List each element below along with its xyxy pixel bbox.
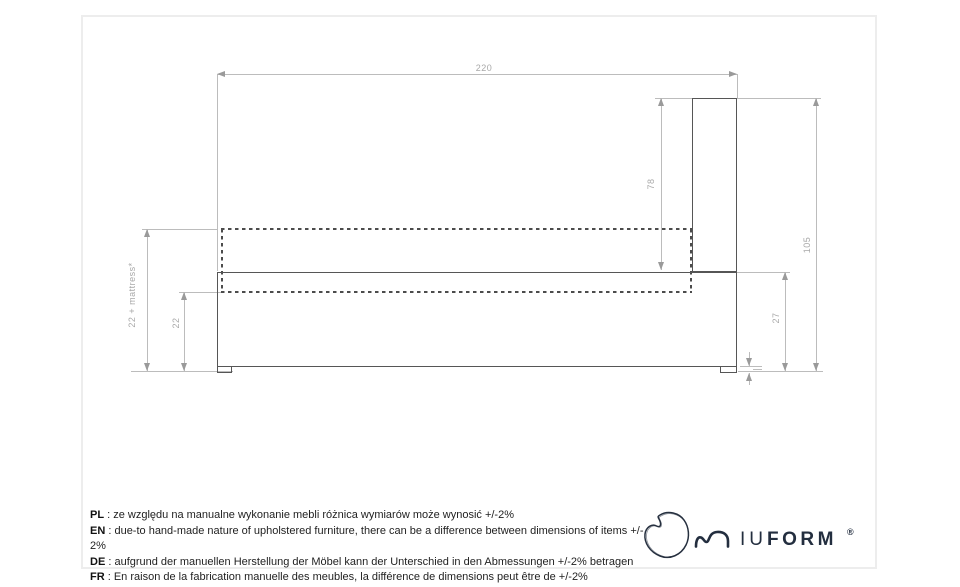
ext-line-leg-top	[740, 366, 762, 367]
note-line-de: DE : aufgrund der manuellen Herstellung …	[90, 555, 650, 571]
dim-label-headboard-height: 78	[646, 178, 656, 189]
arrow-78-bottom	[658, 262, 664, 270]
arrow-27-bottom	[782, 363, 788, 371]
arrow-22-top	[181, 292, 187, 300]
ext-line-headboard-top-right	[737, 98, 821, 99]
note-line-fr: FR : En raison de la fabrication manuell…	[90, 570, 650, 586]
disclaimer-notes: PL : ze względu na manualne wykonanie me…	[90, 508, 650, 586]
arrow-width-left	[217, 71, 225, 77]
note-lang-pl: PL	[90, 509, 104, 521]
dim-headboard-height-line	[661, 98, 662, 270]
arrow-105-top	[813, 98, 819, 106]
brand-text-iu: IU	[740, 530, 767, 549]
ext-line-headboard-right	[737, 74, 738, 98]
arrow-mattress-top	[144, 229, 150, 237]
miuform-bean-icon	[643, 510, 693, 567]
dim-width-line	[217, 74, 737, 75]
note-lang-en: EN	[90, 525, 105, 537]
note-text-de: aufgrund der manuellen Herstellung der M…	[114, 556, 633, 568]
dim-label-base-height-right: 27	[771, 312, 781, 323]
ext-line-frame-left	[217, 74, 218, 271]
arrow-leg-top	[746, 358, 752, 366]
miuform-letter-m-icon	[694, 530, 740, 553]
ext-line-mattress-top	[142, 229, 217, 230]
arrow-mattress-bottom	[144, 363, 150, 371]
note-lang-de: DE	[90, 556, 105, 568]
bed-leg-left	[217, 366, 232, 373]
dim-base-height-right-line	[785, 272, 786, 371]
arrow-22-bottom	[181, 363, 187, 371]
registered-trademark-icon: ®	[847, 527, 854, 537]
note-separator: :	[104, 509, 113, 521]
note-text-en: due-to hand-made nature of upholstered f…	[90, 525, 644, 553]
mattress-outline-top	[221, 228, 692, 230]
bed-dimension-sheet: 220 78 105 27 22 22 + mattress* PL : ze …	[0, 0, 960, 587]
note-line-en: EN : due-to hand-made nature of upholste…	[90, 524, 650, 555]
arrow-width-right	[729, 71, 737, 77]
headboard	[692, 98, 737, 272]
note-separator: :	[105, 571, 114, 583]
arrow-105-bottom	[813, 363, 819, 371]
brand-text-form: FORM	[767, 530, 837, 549]
dim-total-height-line	[816, 98, 817, 371]
note-lang-fr: FR	[90, 571, 105, 583]
arrow-78-top	[658, 98, 664, 106]
dim-label-width: 220	[476, 63, 493, 73]
ext-line-leg-tick	[753, 369, 762, 370]
arrow-leg-bottom	[746, 373, 752, 381]
dim-base-height-left-line	[184, 292, 185, 371]
dim-label-base-plus-mattress: 22 + mattress*	[127, 262, 137, 327]
dim-label-base-height-left: 22	[171, 317, 181, 328]
note-line-pl: PL : ze względu na manualne wykonanie me…	[90, 508, 650, 524]
floor-line-right	[738, 371, 823, 372]
dim-label-total-height: 105	[802, 237, 812, 254]
dim-mattress-height-line	[147, 229, 148, 371]
arrow-27-top	[782, 272, 788, 280]
bed-frame	[217, 272, 737, 367]
note-text-pl: ze względu na manualne wykonanie mebli r…	[113, 509, 514, 521]
note-text-fr: En raison de la fabrication manuelle des…	[114, 571, 588, 583]
bed-leg-right	[720, 366, 737, 373]
